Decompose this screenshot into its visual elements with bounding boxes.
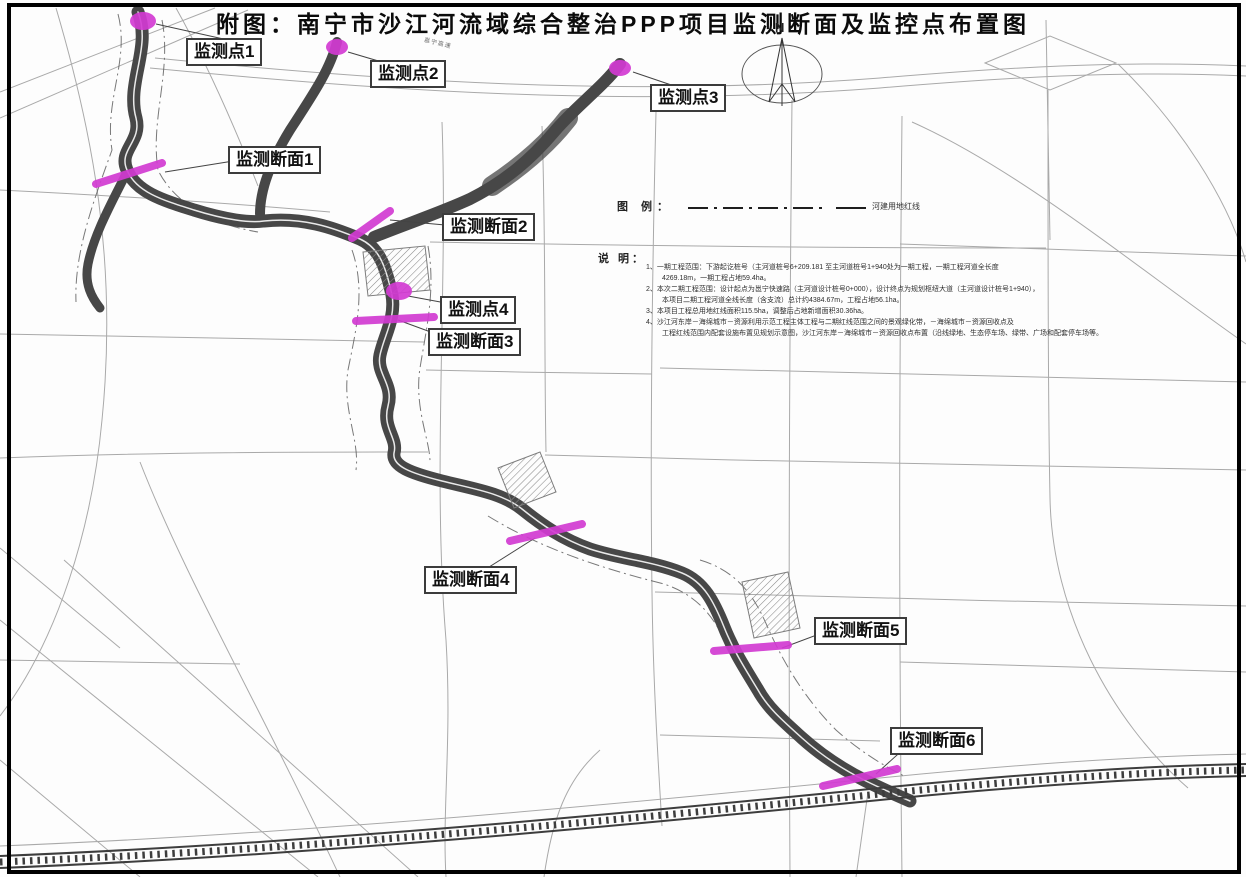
monitoring-point-3-marker [609,60,631,76]
redline-boundary [76,14,904,776]
monitoring-point-3-label: 监测点3 [650,84,726,112]
note-line: 本项目二期工程河道全线长度（含支流）总计约4384.67m，工程占地56.1ha… [646,295,1103,306]
note-line: 2、本次二期工程范围：设计起点为邕宁快速路（主河道设计桩号0+000），设计终点… [646,284,1103,295]
street-network [0,8,1246,877]
monitoring-section-1-label: 监测断面1 [228,146,321,174]
note-line: 1、一期工程范围：下游起讫桩号（主河道桩号6+209.181 至主河道桩号1+9… [646,262,1103,273]
page-title: 附图：南宁市沙江河流域综合整治PPP项目监测断面及监控点布置图 [0,5,1246,39]
river [87,12,910,801]
monitoring-section-5-label: 监测断面5 [814,617,907,645]
note-line: 3、本项目工程总用地红线面积115.5ha，调整后占地新增面积30.36ha。 [646,306,1103,317]
note-line: 4、沙江河东岸－海绵城市－资源利用示范工程主体工程与二期红线范围之间的景观绿化带… [646,317,1103,328]
legend-heading: 图 例： [617,198,673,214]
leader-lines [156,24,907,774]
monitoring-point-2-marker [326,39,348,55]
north-label: N [775,20,784,35]
map-page: 附图：南宁市沙江河流域综合整治PPP项目监测断面及监控点布置图 N 邕宁高速 监… [0,0,1246,877]
map-canvas [0,0,1246,877]
monitoring-section-2-label: 监测断面2 [442,213,535,241]
monitoring-point-1-label: 监测点1 [186,38,262,66]
monitoring-point-2-label: 监测点2 [370,60,446,88]
notes-block: 1、一期工程范围：下游起讫桩号（主河道桩号6+209.181 至主河道桩号1+9… [646,262,1103,339]
note-line: 工程红线范围内配套设施布置见规划示意图，沙江河东岸－海绵城市－资源回收点布置（沿… [646,328,1103,339]
monitoring-section-3-label: 监测断面3 [428,328,521,356]
monitoring-point-4-label: 监测点4 [440,296,516,324]
notes-heading: 说 明： [598,250,646,266]
north-arrow-icon [742,38,822,106]
monitoring-section-4-label: 监测断面4 [424,566,517,594]
note-line: 4269.18m，一期工程占地59.4ha。 [646,273,1103,284]
monitoring-section-5-marker [714,645,788,651]
monitoring-point-4-marker [386,282,412,300]
monitoring-section-3-marker [356,317,434,321]
railway [0,764,1246,868]
monitoring-section-6-label: 监测断面6 [890,727,983,755]
legend-item-label: 河建用地红线 [872,201,920,212]
